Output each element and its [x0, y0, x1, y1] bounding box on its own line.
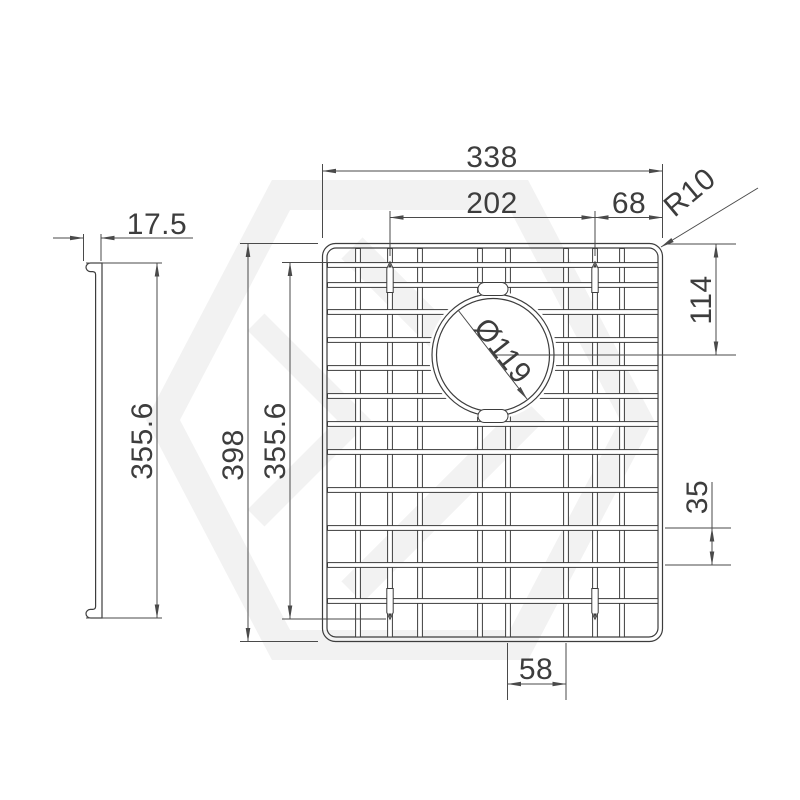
side-depth-label: 17.5 [127, 208, 187, 241]
wire [328, 263, 659, 268]
wire [593, 249, 598, 638]
drain-hole-top-tab [478, 283, 508, 296]
pin-edge-offset-label: 68 [612, 187, 646, 220]
overall-width-label: 338 [466, 141, 518, 174]
wire [328, 599, 659, 604]
side-height-label: 355.6 [126, 402, 159, 480]
wire [328, 488, 659, 493]
wire [620, 249, 625, 638]
pin-spacing-width-label: 202 [466, 187, 518, 220]
wire [564, 249, 569, 638]
technical-drawing-canvas: 17.5 355.6 [0, 0, 800, 800]
drain-hole-bottom-tab [478, 410, 508, 423]
wire [388, 249, 393, 638]
wire [328, 563, 659, 568]
wire [328, 526, 659, 531]
drawing-background [0, 0, 800, 800]
bottom-wire-spacing-label: 58 [519, 653, 553, 686]
wire [356, 249, 361, 638]
pin-spacing-height-label: 355.6 [259, 402, 292, 480]
wire [418, 249, 423, 638]
hole-center-from-top-label: 114 [685, 275, 718, 324]
wire [328, 450, 659, 455]
overall-height-label: 398 [217, 429, 250, 481]
wire-gap-label: 35 [681, 480, 714, 514]
